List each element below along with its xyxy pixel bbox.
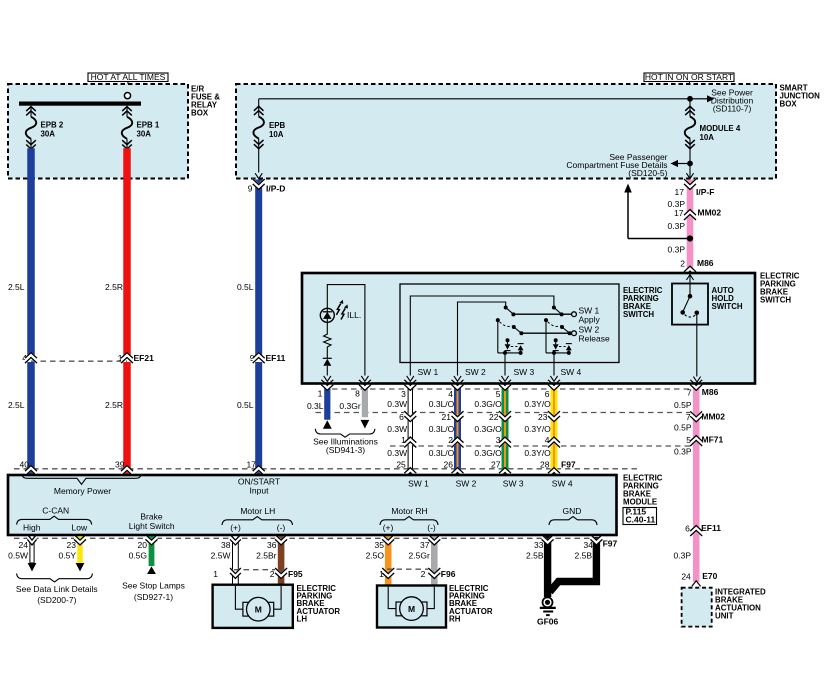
svg-text:SWITCH: SWITCH bbox=[712, 302, 743, 311]
svg-text:See Stop Lamps: See Stop Lamps bbox=[122, 581, 185, 591]
svg-text:17: 17 bbox=[247, 459, 257, 469]
svg-text:F95: F95 bbox=[288, 569, 303, 579]
svg-text:SW 1: SW 1 bbox=[408, 478, 429, 488]
svg-text:0.5L: 0.5L bbox=[237, 400, 254, 410]
svg-text:0.5Y: 0.5Y bbox=[59, 551, 77, 561]
svg-text:28: 28 bbox=[540, 459, 550, 469]
svg-text:EF21: EF21 bbox=[134, 353, 155, 363]
svg-text:36: 36 bbox=[267, 540, 277, 550]
svg-text:0.5L: 0.5L bbox=[237, 282, 254, 292]
svg-text:26: 26 bbox=[444, 459, 454, 469]
svg-text:0.3L: 0.3L bbox=[307, 401, 324, 411]
svg-text:6: 6 bbox=[545, 389, 550, 399]
svg-text:3: 3 bbox=[496, 435, 501, 445]
svg-text:SW 4: SW 4 bbox=[552, 478, 573, 488]
svg-text:UNIT: UNIT bbox=[715, 611, 734, 620]
svg-text:3: 3 bbox=[401, 389, 406, 399]
svg-text:High: High bbox=[23, 523, 41, 533]
svg-text:0.5G: 0.5G bbox=[129, 551, 147, 561]
svg-text:Input: Input bbox=[250, 486, 270, 496]
svg-text:0.5W: 0.5W bbox=[8, 551, 28, 561]
svg-text:6: 6 bbox=[685, 524, 690, 534]
svg-text:2.5B: 2.5B bbox=[575, 551, 593, 561]
svg-text:HOT AT ALL TIMES: HOT AT ALL TIMES bbox=[91, 72, 166, 82]
svg-text:LH: LH bbox=[297, 614, 308, 623]
svg-text:SW 2: SW 2 bbox=[465, 367, 486, 377]
svg-text:(-): (-) bbox=[277, 523, 286, 533]
svg-text:17: 17 bbox=[674, 208, 684, 218]
svg-text:(+): (+) bbox=[230, 523, 241, 533]
svg-text:2.5L: 2.5L bbox=[8, 282, 25, 292]
svg-text:I/P-F: I/P-F bbox=[696, 187, 714, 197]
svg-text:0.3P: 0.3P bbox=[674, 446, 692, 456]
svg-text:0.3P: 0.3P bbox=[668, 245, 686, 255]
svg-text:2.5R: 2.5R bbox=[105, 282, 123, 292]
svg-text:Motor RH: Motor RH bbox=[391, 506, 427, 516]
svg-text:0.3L/O: 0.3L/O bbox=[429, 448, 455, 458]
svg-text:GND: GND bbox=[563, 506, 582, 516]
svg-text:0.5P: 0.5P bbox=[674, 400, 692, 410]
svg-text:F96: F96 bbox=[441, 569, 456, 579]
svg-text:38: 38 bbox=[221, 540, 231, 550]
svg-text:20: 20 bbox=[138, 540, 148, 550]
svg-text:2: 2 bbox=[270, 569, 275, 579]
svg-text:ILL.: ILL. bbox=[347, 310, 361, 320]
svg-text:40: 40 bbox=[20, 459, 30, 469]
svg-text:5: 5 bbox=[686, 435, 691, 445]
svg-text:(SD110-7): (SD110-7) bbox=[713, 104, 752, 114]
svg-text:F97: F97 bbox=[561, 460, 576, 470]
svg-text:5: 5 bbox=[496, 389, 501, 399]
svg-text:7: 7 bbox=[686, 412, 691, 422]
svg-text:0.3P: 0.3P bbox=[668, 221, 686, 231]
svg-text:9: 9 bbox=[248, 184, 253, 194]
svg-text:0.3L/O: 0.3L/O bbox=[429, 424, 455, 434]
svg-text:0.3G/O: 0.3G/O bbox=[474, 424, 502, 434]
svg-text:2.5Gr: 2.5Gr bbox=[409, 551, 430, 561]
svg-text:2.5W: 2.5W bbox=[211, 551, 231, 561]
svg-text:(SD120-5): (SD120-5) bbox=[628, 168, 667, 178]
svg-text:24: 24 bbox=[19, 540, 29, 550]
svg-text:33: 33 bbox=[534, 540, 544, 550]
svg-text:27: 27 bbox=[491, 459, 501, 469]
svg-text:SW 3: SW 3 bbox=[503, 478, 524, 488]
svg-text:2.5O: 2.5O bbox=[366, 551, 385, 561]
svg-text:1: 1 bbox=[401, 435, 406, 445]
svg-text:4: 4 bbox=[545, 435, 550, 445]
svg-text:EF11: EF11 bbox=[266, 353, 286, 363]
svg-text:0.3W: 0.3W bbox=[387, 424, 407, 434]
svg-text:2.5Br: 2.5Br bbox=[256, 551, 276, 561]
svg-text:0.5P: 0.5P bbox=[674, 422, 692, 432]
svg-text:Brake: Brake bbox=[140, 511, 162, 521]
svg-text:21: 21 bbox=[442, 412, 452, 422]
svg-text:0.3Y/O: 0.3Y/O bbox=[524, 448, 551, 458]
svg-text:I/P-D: I/P-D bbox=[266, 184, 285, 194]
svg-text:MM02: MM02 bbox=[701, 412, 725, 422]
svg-text:GF06: GF06 bbox=[537, 616, 559, 626]
svg-text:37: 37 bbox=[420, 540, 430, 550]
svg-text:(SD200-7): (SD200-7) bbox=[37, 595, 76, 605]
svg-text:8: 8 bbox=[355, 388, 360, 398]
svg-text:2.5R: 2.5R bbox=[105, 400, 123, 410]
svg-text:10A: 10A bbox=[700, 133, 715, 142]
svg-text:SW 2: SW 2 bbox=[456, 478, 477, 488]
svg-text:C.40-11: C.40-11 bbox=[626, 515, 656, 525]
svg-text:39: 39 bbox=[115, 459, 125, 469]
svg-text:BOX: BOX bbox=[191, 108, 209, 117]
svg-text:SW 3: SW 3 bbox=[514, 367, 535, 377]
svg-text:0.3P: 0.3P bbox=[674, 550, 692, 560]
svg-text:RH: RH bbox=[449, 614, 461, 623]
svg-text:0.3W: 0.3W bbox=[387, 448, 407, 458]
svg-text:Light Switch: Light Switch bbox=[129, 521, 175, 531]
svg-text:0.3Gr: 0.3Gr bbox=[339, 401, 360, 411]
svg-text:(-): (-) bbox=[427, 523, 436, 533]
svg-text:22: 22 bbox=[489, 412, 499, 422]
svg-text:EF11: EF11 bbox=[701, 523, 721, 533]
svg-text:See Data Link Details: See Data Link Details bbox=[16, 584, 98, 594]
svg-text:MM02: MM02 bbox=[698, 208, 722, 218]
svg-text:17: 17 bbox=[675, 187, 685, 197]
svg-text:EPB 1: EPB 1 bbox=[137, 121, 160, 130]
svg-text:1: 1 bbox=[318, 388, 323, 398]
svg-text:1: 1 bbox=[213, 569, 218, 579]
svg-text:Release: Release bbox=[579, 334, 610, 344]
svg-text:MODULE: MODULE bbox=[623, 498, 657, 507]
svg-text:MF71: MF71 bbox=[702, 435, 724, 445]
svg-text:M86: M86 bbox=[702, 387, 719, 397]
svg-text:(SD927-1): (SD927-1) bbox=[134, 592, 173, 602]
svg-text:Motor LH: Motor LH bbox=[240, 506, 275, 516]
svg-text:7: 7 bbox=[687, 387, 692, 397]
svg-text:2.5B: 2.5B bbox=[526, 551, 544, 561]
svg-text:0.3W: 0.3W bbox=[387, 399, 407, 409]
svg-text:Apply: Apply bbox=[579, 315, 601, 325]
svg-text:30A: 30A bbox=[137, 130, 152, 139]
svg-text:SWITCH: SWITCH bbox=[623, 310, 654, 319]
svg-text:6: 6 bbox=[399, 412, 404, 422]
svg-text:2.5L: 2.5L bbox=[8, 400, 25, 410]
svg-text:0.3G/O: 0.3G/O bbox=[474, 399, 502, 409]
svg-text:2: 2 bbox=[680, 259, 685, 269]
svg-text:10A: 10A bbox=[269, 130, 284, 139]
svg-text:24: 24 bbox=[681, 571, 691, 581]
svg-text:MODULE 4: MODULE 4 bbox=[700, 124, 741, 133]
svg-text:35: 35 bbox=[375, 540, 385, 550]
svg-text:SW 1: SW 1 bbox=[418, 367, 439, 377]
svg-text:EPB: EPB bbox=[269, 121, 286, 130]
svg-text:0.3L/O: 0.3L/O bbox=[429, 399, 455, 409]
svg-text:BOX: BOX bbox=[780, 99, 798, 108]
svg-text:F97: F97 bbox=[603, 539, 618, 549]
svg-text:(SD941-3): (SD941-3) bbox=[326, 445, 365, 455]
svg-text:M: M bbox=[255, 605, 262, 615]
svg-text:0.3Y/O: 0.3Y/O bbox=[524, 399, 551, 409]
svg-text:C-CAN: C-CAN bbox=[42, 506, 69, 516]
svg-text:SWITCH: SWITCH bbox=[760, 296, 791, 305]
svg-text:Low: Low bbox=[72, 523, 88, 533]
svg-text:0.3G/O: 0.3G/O bbox=[474, 448, 502, 458]
svg-text:4: 4 bbox=[448, 389, 453, 399]
svg-text:HOT IN ON OR START: HOT IN ON OR START bbox=[645, 72, 733, 82]
svg-text:M: M bbox=[408, 604, 415, 614]
svg-text:Memory Power: Memory Power bbox=[54, 486, 111, 496]
svg-text:M86: M86 bbox=[697, 258, 714, 268]
svg-text:30A: 30A bbox=[41, 130, 56, 139]
svg-text:(+): (+) bbox=[383, 523, 394, 533]
svg-text:EPB 2: EPB 2 bbox=[41, 121, 64, 130]
svg-text:0.3Y/O: 0.3Y/O bbox=[524, 424, 551, 434]
svg-text:2: 2 bbox=[421, 569, 426, 579]
svg-text:SW 4: SW 4 bbox=[561, 367, 582, 377]
svg-text:25: 25 bbox=[396, 459, 406, 469]
svg-text:23: 23 bbox=[67, 540, 77, 550]
svg-text:2: 2 bbox=[448, 435, 453, 445]
svg-text:23: 23 bbox=[538, 412, 548, 422]
svg-text:1: 1 bbox=[379, 569, 384, 579]
svg-text:E70: E70 bbox=[702, 571, 717, 581]
